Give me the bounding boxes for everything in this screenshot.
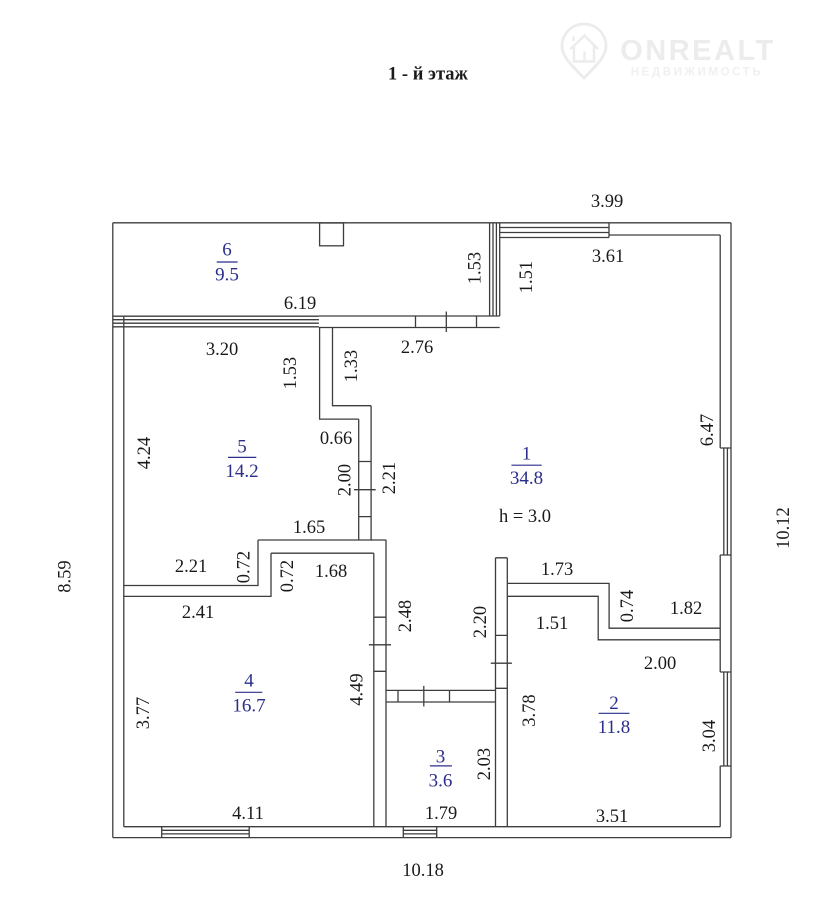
svg-text:1: 1: [522, 444, 532, 465]
svg-text:2.41: 2.41: [182, 603, 214, 623]
svg-text:4.49: 4.49: [348, 673, 368, 705]
svg-text:3.51: 3.51: [596, 807, 628, 827]
svg-text:1.53: 1.53: [281, 357, 301, 389]
svg-text:4: 4: [244, 670, 254, 691]
svg-text:2.03: 2.03: [475, 748, 495, 780]
svg-text:3.99: 3.99: [591, 192, 623, 212]
svg-text:1.68: 1.68: [315, 562, 347, 582]
svg-text:2.76: 2.76: [401, 338, 433, 358]
svg-text:6: 6: [222, 240, 232, 261]
svg-text:2.20: 2.20: [471, 606, 491, 638]
svg-text:1.82: 1.82: [670, 599, 702, 619]
svg-text:14.2: 14.2: [225, 461, 258, 482]
svg-text:2.00: 2.00: [336, 464, 356, 496]
svg-text:4.11: 4.11: [232, 804, 264, 824]
svg-text:8.59: 8.59: [56, 560, 76, 592]
svg-text:ONREALT: ONREALT: [620, 35, 776, 67]
svg-text:1.53: 1.53: [466, 252, 486, 284]
svg-text:2.00: 2.00: [644, 654, 676, 674]
svg-text:3.61: 3.61: [592, 247, 624, 267]
svg-text:1.79: 1.79: [425, 804, 457, 824]
svg-text:3: 3: [436, 746, 446, 767]
svg-text:h = 3.0: h = 3.0: [499, 507, 551, 527]
svg-text:1 - й этаж: 1 - й этаж: [388, 65, 469, 85]
svg-text:2.21: 2.21: [175, 557, 207, 577]
svg-text:1.33: 1.33: [342, 350, 362, 382]
svg-text:10.18: 10.18: [402, 861, 444, 881]
svg-text:2: 2: [609, 693, 619, 714]
svg-text:0.66: 0.66: [320, 429, 352, 449]
svg-text:4.24: 4.24: [135, 437, 155, 469]
svg-text:2.21: 2.21: [380, 462, 400, 494]
svg-text:34.8: 34.8: [510, 468, 543, 489]
svg-text:1.51: 1.51: [517, 261, 537, 293]
svg-text:6.47: 6.47: [698, 414, 718, 446]
svg-text:3.04: 3.04: [700, 720, 720, 752]
svg-text:11.8: 11.8: [598, 717, 631, 738]
svg-text:3.20: 3.20: [206, 340, 238, 360]
svg-text:1.73: 1.73: [541, 560, 573, 580]
svg-text:3.6: 3.6: [429, 770, 453, 791]
svg-text:3.78: 3.78: [520, 694, 540, 726]
svg-text:0.74: 0.74: [618, 590, 638, 622]
svg-text:0.72: 0.72: [235, 551, 255, 583]
svg-text:2.48: 2.48: [396, 600, 416, 632]
svg-text:10.12: 10.12: [774, 507, 794, 549]
svg-text:0.72: 0.72: [278, 560, 298, 592]
svg-text:6.19: 6.19: [284, 294, 316, 314]
svg-text:1.51: 1.51: [536, 614, 568, 634]
svg-text:1.65: 1.65: [293, 518, 325, 538]
svg-text:9.5: 9.5: [215, 264, 239, 285]
svg-text:НЕДВИЖИМОСТЬ: НЕДВИЖИМОСТЬ: [631, 67, 763, 79]
svg-text:5: 5: [237, 437, 247, 458]
svg-text:16.7: 16.7: [232, 695, 265, 716]
svg-text:3.77: 3.77: [134, 697, 154, 729]
